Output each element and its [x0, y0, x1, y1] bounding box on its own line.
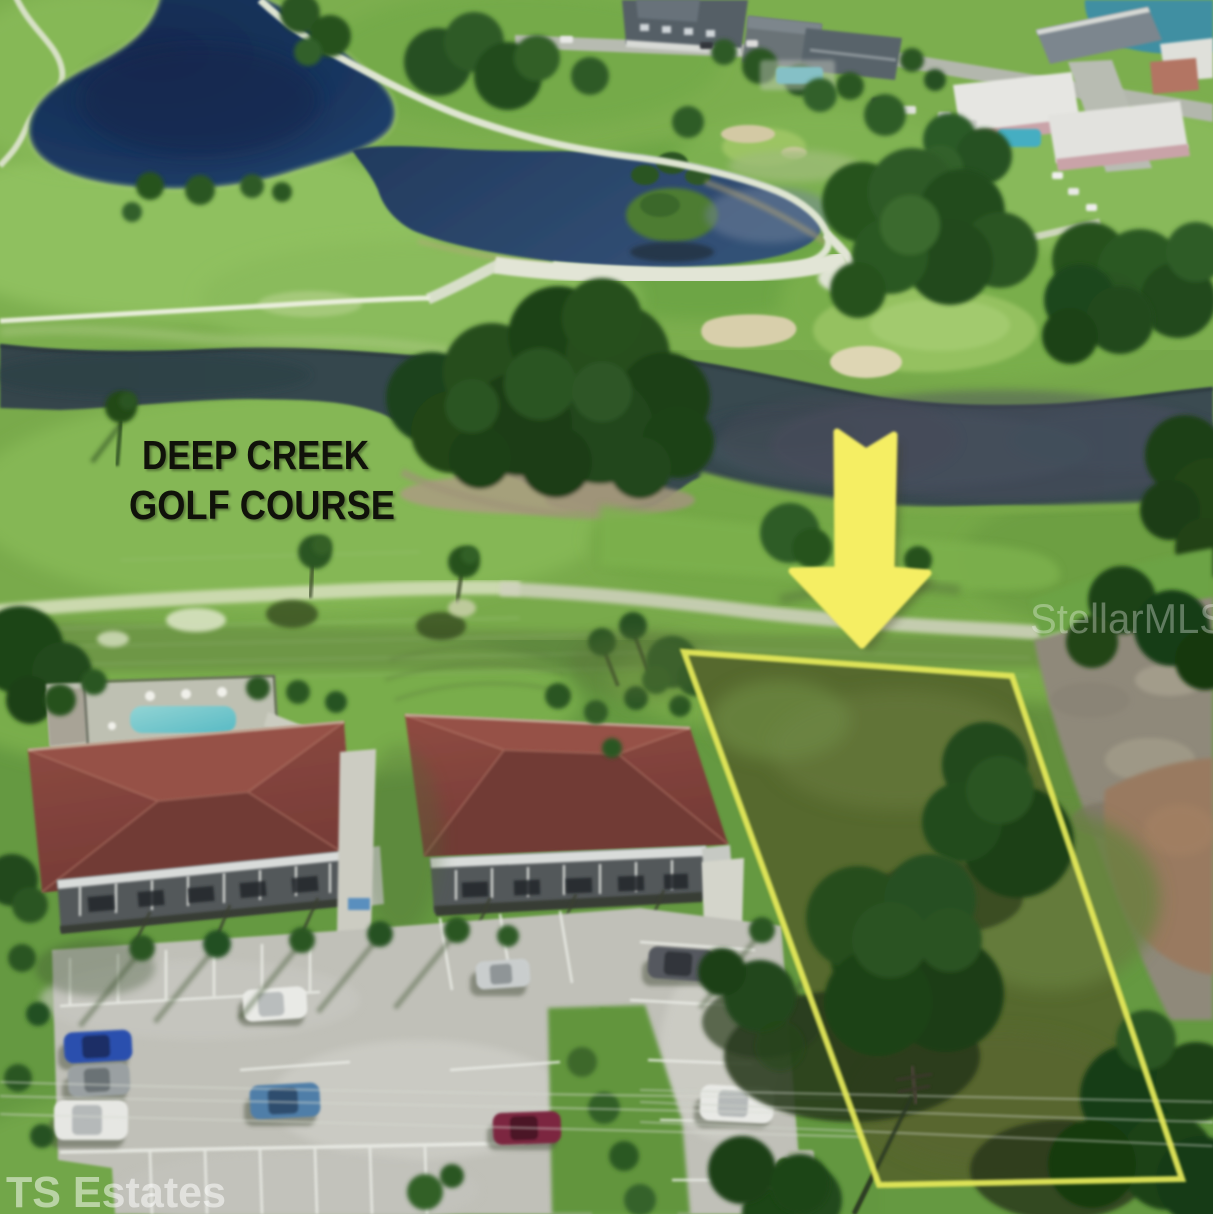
svg-text:TS Estates: TS Estates: [6, 1168, 226, 1214]
svg-text:GOLF COURSE: GOLF COURSE: [129, 482, 395, 528]
svg-text:DEEP CREEK: DEEP CREEK: [142, 432, 369, 478]
svg-text:StellarMLS: StellarMLS: [1030, 595, 1213, 642]
